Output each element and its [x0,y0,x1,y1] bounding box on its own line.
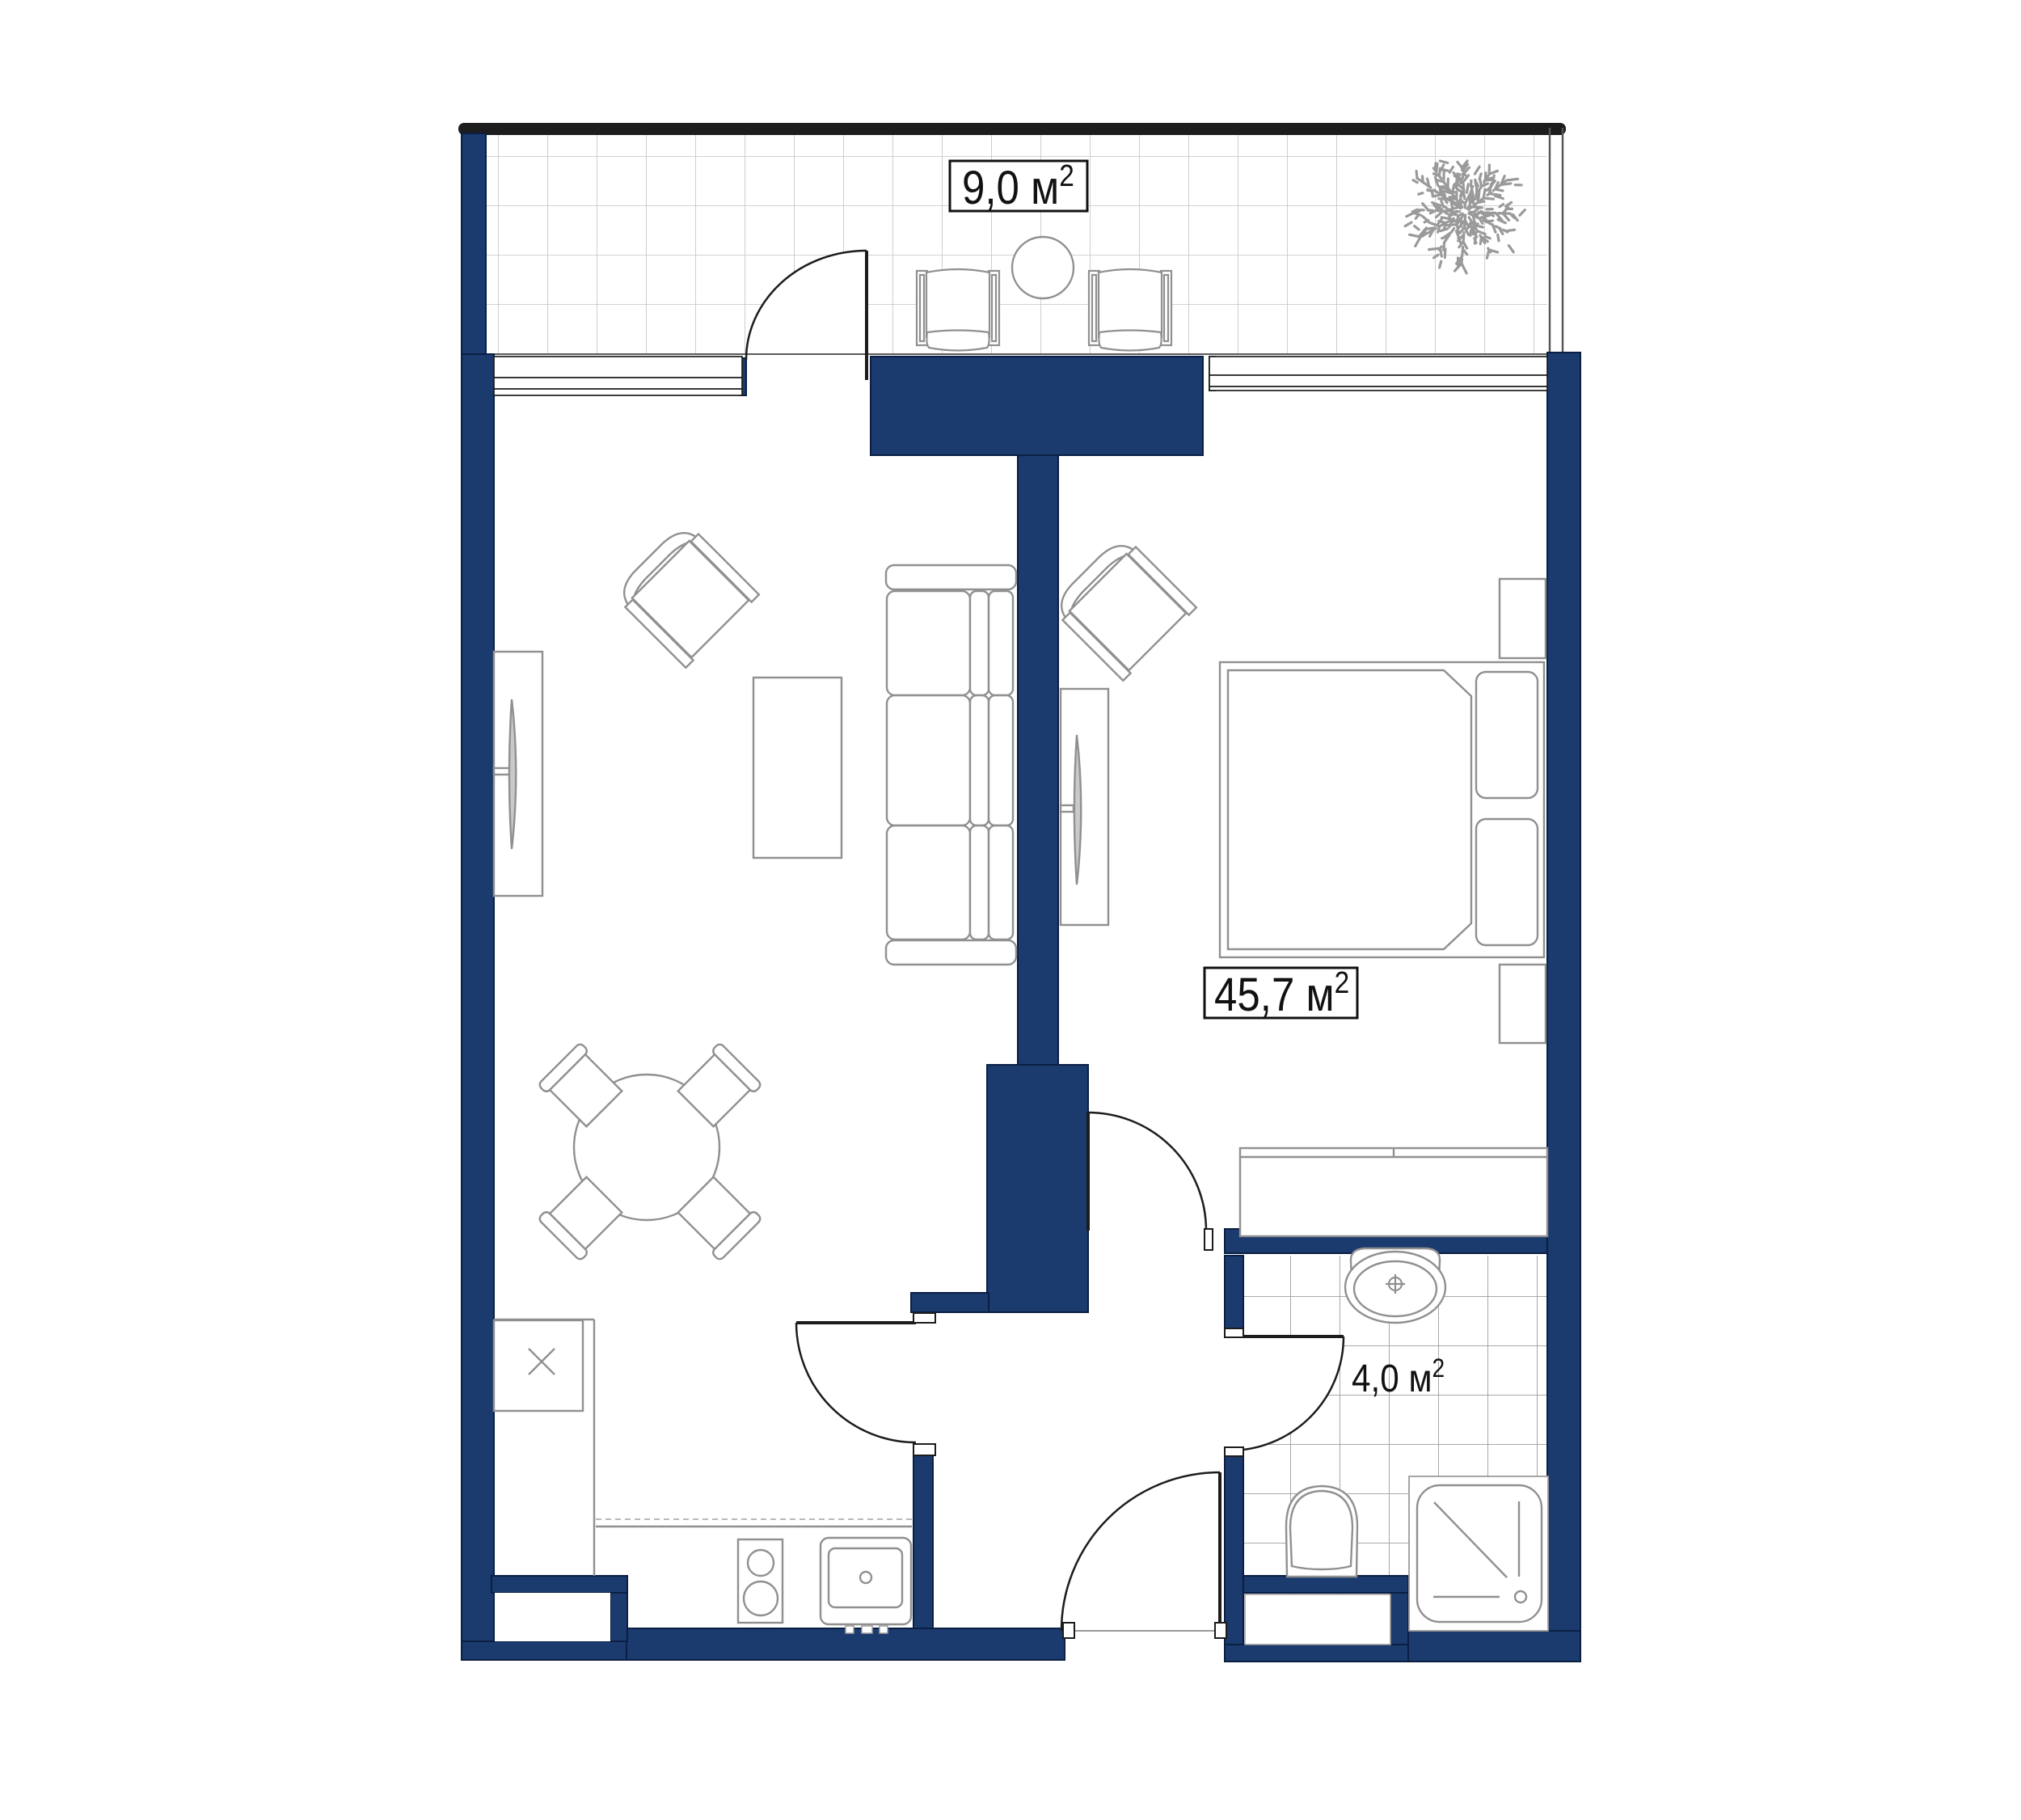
svg-text:4,0 м2: 4,0 м2 [1352,1354,1445,1400]
svg-text:45,7 м2: 45,7 м2 [1214,965,1349,1021]
svg-text:9,0 м2: 9,0 м2 [962,158,1074,214]
